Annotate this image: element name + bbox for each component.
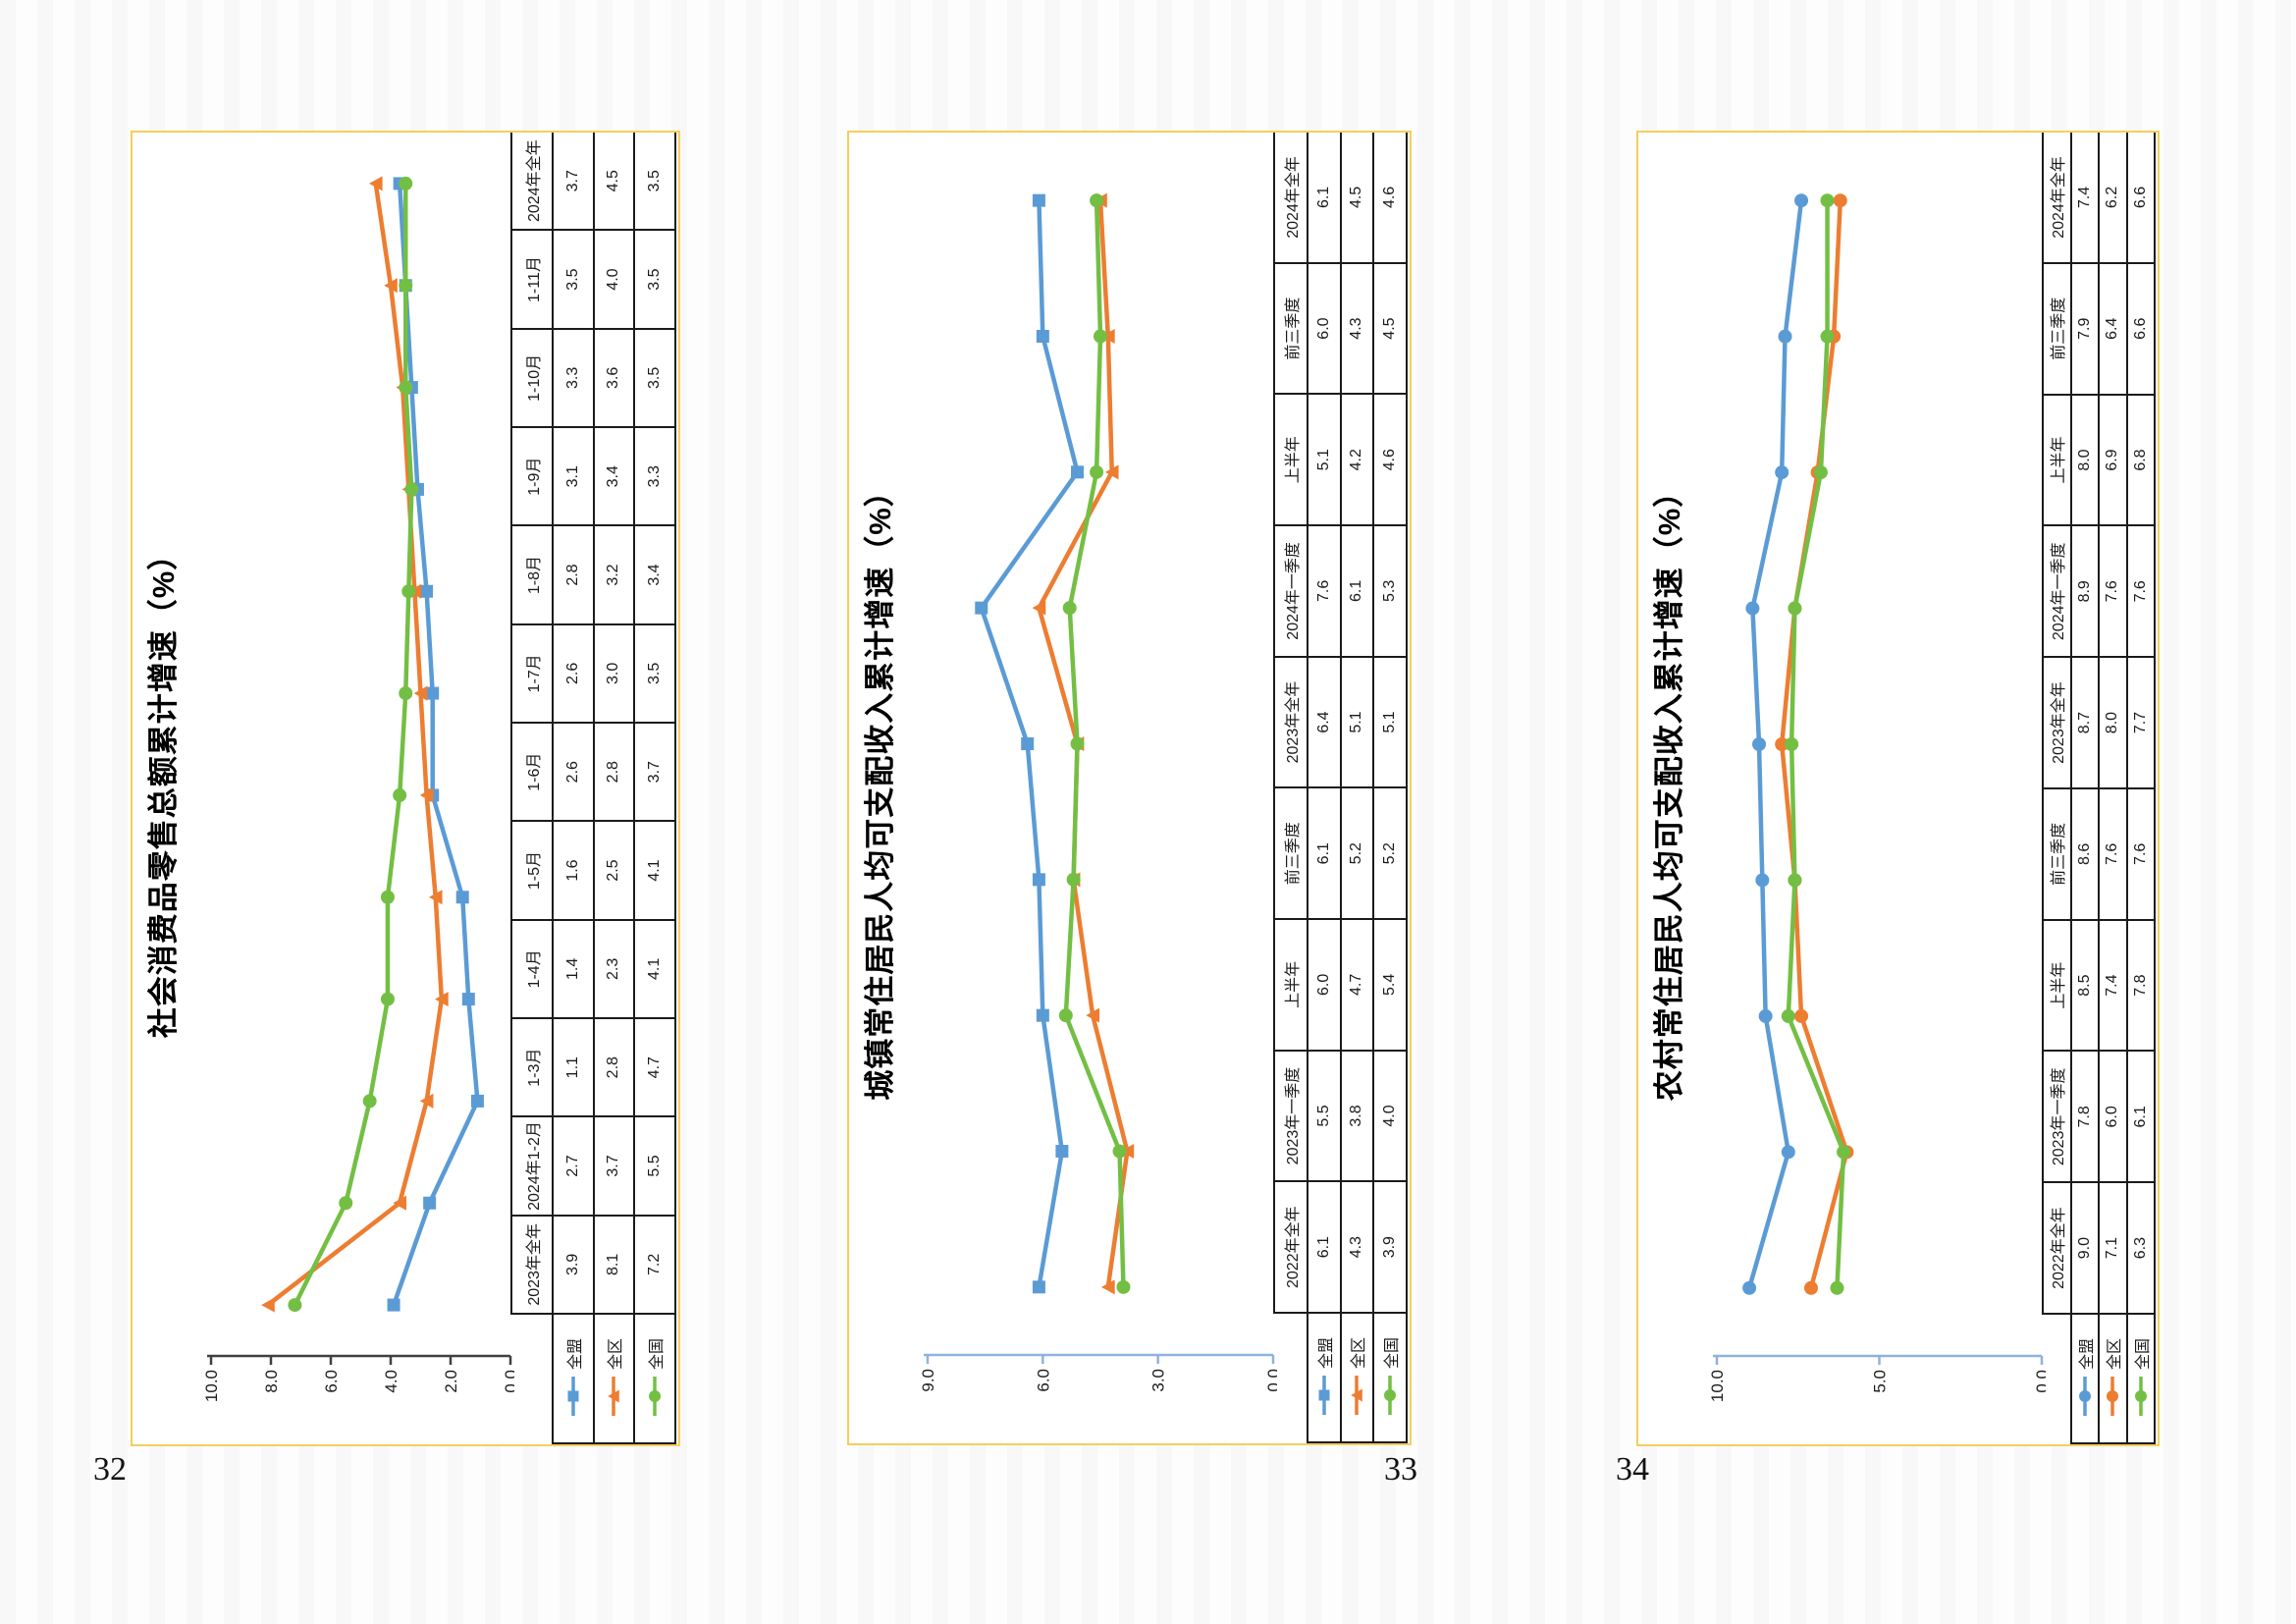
circle-marker-icon	[1779, 330, 1792, 344]
circle-marker-icon	[381, 891, 395, 904]
table-header-cell: 1-4月	[511, 920, 553, 1018]
table-header-cell: 2024年一季度	[1274, 525, 1308, 657]
table-value-cell: 3.2	[594, 525, 635, 623]
table-value-cell: 5.3	[1373, 525, 1407, 657]
table-value-cell: 3.8	[1341, 1051, 1374, 1182]
table-value-cell: 6.1	[2127, 1051, 2156, 1182]
table-corner-cell	[1274, 1313, 1308, 1442]
y-axis-tick-label: 2.0	[442, 1370, 460, 1393]
table-value-cell: 5.1	[1373, 657, 1407, 788]
table-header-cell: 前三季度	[2043, 263, 2071, 395]
table-value-cell: 2.5	[594, 821, 635, 919]
y-axis-tick-label: 10.0	[1708, 1370, 1727, 1402]
table-value-cell: 2.8	[553, 525, 594, 623]
table-value-cell: 2.6	[553, 723, 594, 821]
page-number: 32	[93, 1451, 127, 1489]
table-row: 全国3.94.05.45.25.15.34.64.54.6	[1373, 133, 1407, 1442]
table-value-cell: 8.5	[2071, 920, 2100, 1052]
table-header-cell: 前三季度	[1274, 263, 1308, 395]
table-value-cell: 4.0	[594, 230, 635, 328]
table-value-cell: 4.5	[1373, 263, 1407, 395]
table-value-cell: 3.1	[553, 427, 594, 525]
square-marker-icon	[1033, 1280, 1045, 1293]
table-value-cell: 7.6	[2099, 788, 2127, 920]
circle-marker-icon	[399, 279, 412, 293]
table-value-cell: 3.4	[634, 525, 675, 623]
table-header-cell: 2024年全年	[1274, 133, 1308, 263]
table-value-cell: 6.1	[1308, 133, 1341, 263]
circle-marker-icon	[1775, 465, 1789, 479]
table-value-cell: 6.1	[1341, 525, 1374, 657]
table-value-cell: 7.4	[2071, 133, 2100, 263]
circle-marker-icon	[1782, 1145, 1795, 1159]
circle-marker-icon	[339, 1196, 352, 1210]
circle-marker-icon	[399, 686, 412, 700]
table-value-cell: 6.6	[2127, 263, 2156, 395]
legend-label: 全盟	[2073, 1338, 2097, 1370]
circle-marker-icon	[404, 482, 418, 496]
table-value-cell: 3.5	[634, 624, 675, 723]
circle-marker-icon	[399, 381, 412, 395]
square-marker-icon	[1021, 737, 1034, 750]
table-value-cell: 3.5	[634, 230, 675, 328]
y-axis-tick-label: 9.0	[919, 1369, 937, 1392]
square-marker-icon	[426, 687, 439, 700]
chart-rotor: 城镇常住居民人均可支配收入累计增速（%）9.06.03.00.02022年全年2…	[849, 133, 1410, 1443]
table-value-cell: 8.1	[594, 1216, 635, 1314]
legend-label: 全国	[1378, 1337, 1402, 1369]
table-header-cell: 2022年全年	[2043, 1182, 2071, 1314]
square-marker-icon	[1055, 1145, 1068, 1158]
circle-marker-icon	[1384, 1389, 1396, 1401]
plot-area: 10.05.00.0	[1638, 133, 2046, 1444]
circle-marker-icon	[1094, 330, 1107, 344]
legend-label: 全国	[2129, 1338, 2153, 1370]
legend-cell: 全区	[2099, 1314, 2127, 1443]
circle-marker-icon	[1837, 1145, 1850, 1159]
circle-marker-icon	[1742, 1281, 1756, 1295]
legend-cell: 全区	[594, 1314, 635, 1443]
table-row: 全盟6.15.56.06.16.47.65.16.06.1	[1308, 133, 1341, 1442]
table-value-cell: 3.5	[553, 230, 594, 328]
y-axis-tick-label: 8.0	[262, 1370, 281, 1393]
table-value-cell: 4.3	[1341, 263, 1374, 395]
circle-marker-icon	[1063, 601, 1077, 615]
circle-marker-icon	[1794, 193, 1808, 207]
table-value-cell: 5.5	[1308, 1051, 1341, 1182]
circle-marker-icon	[1745, 602, 1759, 616]
table-value-cell: 4.3	[1341, 1181, 1374, 1313]
circle-marker-icon	[1788, 873, 1801, 887]
table-value-cell: 5.2	[1373, 787, 1407, 919]
table-value-cell: 4.2	[1341, 394, 1374, 525]
table-header-row: 2022年全年2023年一季度上半年前三季度2023年全年2024年一季度上半年…	[1274, 133, 1308, 1442]
table-value-cell: 3.7	[553, 133, 594, 230]
circle-marker-icon	[1830, 1281, 1843, 1295]
chart-rotor: 农村常住居民人均可支配收入累计增速（%）10.05.00.02022年全年202…	[1638, 133, 2158, 1444]
y-axis-tick-label: 10.0	[202, 1370, 221, 1402]
table-header-cell: 1-5月	[511, 821, 553, 919]
table-value-cell: 3.7	[594, 1116, 635, 1215]
circle-marker-icon	[1782, 1009, 1795, 1023]
triangle-marker-icon	[261, 1298, 275, 1313]
circle-marker-icon	[393, 788, 406, 802]
table-value-cell: 6.2	[2099, 133, 2127, 263]
legend-label: 全区	[2101, 1338, 2124, 1370]
table-value-cell: 8.0	[2071, 395, 2100, 526]
circle-marker-icon	[401, 584, 415, 598]
y-axis-tick-label: 5.0	[1871, 1370, 1890, 1393]
legend-key-icon	[2132, 1374, 2150, 1419]
table-value-cell: 6.3	[2127, 1182, 2156, 1314]
table-value-cell: 4.5	[1341, 133, 1374, 263]
table-value-cell: 6.6	[2127, 133, 2156, 263]
table-value-cell: 7.2	[634, 1216, 675, 1314]
legend-cell: 全国	[1373, 1313, 1407, 1442]
y-axis-tick-label: 3.0	[1149, 1369, 1168, 1392]
chart-panel-2: 城镇常住居民人均可支配收入累计增速（%）9.06.03.00.02022年全年2…	[847, 131, 1412, 1445]
circle-marker-icon	[1821, 330, 1835, 344]
square-marker-icon	[456, 891, 469, 903]
circle-marker-icon	[363, 1094, 377, 1108]
table-value-cell: 6.4	[1308, 657, 1341, 788]
square-marker-icon	[423, 1197, 436, 1210]
legend-label: 全区	[602, 1338, 625, 1370]
table-value-cell: 4.1	[634, 821, 675, 919]
circle-marker-icon	[1755, 873, 1769, 887]
table-header-cell: 2023年全年	[511, 1216, 553, 1314]
table-corner-cell	[2043, 1314, 2071, 1443]
circle-marker-icon	[1067, 873, 1081, 887]
circle-marker-icon	[1752, 737, 1766, 751]
legend-label: 全国	[643, 1338, 667, 1370]
table-header-cell: 1-3月	[511, 1018, 553, 1116]
table-corner-cell	[511, 1314, 553, 1443]
circle-marker-icon	[1788, 602, 1801, 616]
table-header-cell: 1-10月	[511, 329, 553, 427]
table-value-cell: 1.6	[553, 821, 594, 919]
table-header-cell: 2023年一季度	[2043, 1051, 2071, 1182]
table-value-cell: 5.2	[1341, 787, 1374, 919]
square-marker-icon	[567, 1391, 578, 1402]
circle-marker-icon	[288, 1298, 301, 1312]
table-header-cell: 2022年全年	[1274, 1181, 1308, 1313]
chart-canvas: 农村常住居民人均可支配收入累计增速（%）10.05.00.02022年全年202…	[1638, 133, 2158, 1444]
table-value-cell: 6.8	[2127, 395, 2156, 526]
table-value-cell: 7.8	[2071, 1051, 2100, 1182]
circle-marker-icon	[2135, 1390, 2147, 1402]
table-header-cell: 1-6月	[511, 723, 553, 821]
table-value-cell: 5.1	[1341, 657, 1374, 788]
square-marker-icon	[1037, 330, 1049, 343]
data-table: 2022年全年2023年一季度上半年前三季度2023年全年2024年一季度上半年…	[2042, 133, 2156, 1444]
circle-marker-icon	[1090, 465, 1103, 479]
table-row: 全区8.13.72.82.32.52.83.03.23.43.64.04.5	[594, 133, 635, 1443]
plot-area: 10.08.06.04.02.00.0	[133, 133, 514, 1444]
square-marker-icon	[975, 602, 988, 615]
table-header-cell: 2024年一季度	[2043, 525, 2071, 657]
table-value-cell: 3.3	[553, 329, 594, 427]
table-value-cell: 7.6	[2099, 525, 2127, 657]
table-value-cell: 4.7	[634, 1018, 675, 1116]
legend-cell: 全国	[634, 1314, 675, 1443]
table-value-cell: 9.0	[2071, 1182, 2100, 1314]
table-header-cell: 2023年一季度	[1274, 1051, 1308, 1182]
table-value-cell: 8.6	[2071, 788, 2100, 920]
square-marker-icon	[1071, 465, 1084, 478]
table-value-cell: 4.0	[1373, 1051, 1407, 1182]
square-marker-icon	[1318, 1390, 1329, 1401]
table-value-cell: 2.6	[553, 624, 594, 723]
legend-key-icon	[1348, 1373, 1365, 1418]
table-row: 全盟9.07.88.58.68.78.98.07.97.4	[2071, 133, 2100, 1443]
legend-label: 全区	[1345, 1337, 1368, 1369]
table-value-cell: 4.6	[1373, 133, 1407, 263]
table-value-cell: 6.0	[1308, 919, 1341, 1051]
table-value-cell: 7.1	[2099, 1182, 2127, 1314]
y-axis-tick-label: 4.0	[382, 1370, 400, 1393]
table-value-cell: 5.4	[1373, 919, 1407, 1051]
table-header-row: 2023年全年2024年1-2月1-3月1-4月1-5月1-6月1-7月1-8月…	[511, 133, 553, 1443]
page-number: 33	[1384, 1451, 1417, 1489]
table-header-cell: 1-8月	[511, 525, 553, 623]
table-header-cell: 上半年	[2043, 395, 2071, 526]
table-value-cell: 3.9	[553, 1216, 594, 1314]
series-line-1	[268, 184, 442, 1305]
circle-marker-icon	[1113, 1145, 1127, 1159]
table-value-cell: 6.0	[2099, 1051, 2127, 1182]
table-value-cell: 6.9	[2099, 395, 2127, 526]
table-header-cell: 上半年	[1274, 919, 1308, 1051]
table-header-cell: 1-7月	[511, 624, 553, 723]
circle-marker-icon	[1759, 1009, 1773, 1023]
table-value-cell: 7.9	[2071, 263, 2100, 395]
table-value-cell: 2.8	[594, 1018, 635, 1116]
table-row: 全盟3.92.71.11.41.62.62.62.83.13.33.53.7	[553, 133, 594, 1443]
table-value-cell: 5.1	[1308, 394, 1341, 525]
page-number: 34	[1616, 1451, 1649, 1489]
circle-marker-icon	[1834, 193, 1847, 207]
table-row: 全区4.33.84.75.25.16.14.24.34.5	[1341, 133, 1374, 1442]
table-value-cell: 4.1	[634, 920, 675, 1018]
circle-marker-icon	[1794, 1009, 1808, 1023]
table-header-cell: 2023年全年	[1274, 657, 1308, 788]
square-marker-icon	[471, 1095, 484, 1108]
table-row: 全区7.16.07.47.68.07.66.96.46.2	[2099, 133, 2127, 1443]
circle-marker-icon	[381, 993, 395, 1006]
legend-key-icon	[646, 1374, 664, 1419]
table-value-cell: 1.4	[553, 920, 594, 1018]
square-marker-icon	[388, 1299, 400, 1312]
table-value-cell: 2.3	[594, 920, 635, 1018]
circle-marker-icon	[2107, 1390, 2118, 1402]
table-value-cell: 7.4	[2099, 920, 2127, 1052]
y-axis-tick-label: 6.0	[322, 1370, 341, 1393]
circle-marker-icon	[399, 177, 412, 190]
circle-marker-icon	[1821, 193, 1835, 207]
legend-cell: 全盟	[1308, 1313, 1341, 1442]
chart-panel-3: 农村常住居民人均可支配收入累计增速（%）10.05.00.02022年全年202…	[1636, 131, 2160, 1446]
table-header-cell: 上半年	[2043, 920, 2071, 1052]
series-line-2	[294, 184, 411, 1305]
legend-key-icon	[2104, 1374, 2121, 1419]
table-row: 全国6.36.17.87.67.77.66.86.66.6	[2127, 133, 2156, 1443]
table-value-cell: 4.5	[594, 133, 635, 230]
table-value-cell: 3.9	[1373, 1181, 1407, 1313]
circle-marker-icon	[1804, 1281, 1818, 1295]
table-value-cell: 8.0	[2099, 657, 2127, 788]
table-value-cell: 7.8	[2127, 920, 2156, 1052]
square-marker-icon	[1033, 194, 1045, 207]
y-axis-tick-label: 6.0	[1034, 1369, 1052, 1392]
legend-cell: 全国	[2127, 1314, 2156, 1443]
legend-key-icon	[2076, 1374, 2094, 1419]
table-header-cell: 前三季度	[1274, 787, 1308, 919]
table-header-cell: 2023年全年	[2043, 657, 2071, 788]
circle-marker-icon	[1116, 1280, 1130, 1294]
table-value-cell: 7.6	[2127, 788, 2156, 920]
table-value-cell: 2.7	[553, 1116, 594, 1215]
table-header-cell: 2024年全年	[2043, 133, 2071, 263]
legend-cell: 全盟	[553, 1314, 594, 1443]
table-value-cell: 1.1	[553, 1018, 594, 1116]
legend-label: 全盟	[561, 1338, 585, 1370]
table-value-cell: 7.6	[1308, 525, 1341, 657]
table-value-cell: 6.1	[1308, 1181, 1341, 1313]
table-value-cell: 7.7	[2127, 657, 2156, 788]
table-value-cell: 3.4	[594, 427, 635, 525]
chart-panel-1: 社会消费品零售总额累计增速（%）10.08.06.04.02.00.02023年…	[131, 131, 680, 1446]
table-value-cell: 3.0	[594, 624, 635, 723]
chart-canvas: 社会消费品零售总额累计增速（%）10.08.06.04.02.00.02023年…	[133, 133, 678, 1444]
table-value-cell: 5.5	[634, 1116, 675, 1215]
square-marker-icon	[1033, 873, 1045, 886]
chart-canvas: 城镇常住居民人均可支配收入累计增速（%）9.06.03.00.02022年全年2…	[849, 133, 1410, 1443]
table-value-cell: 3.6	[594, 329, 635, 427]
table-header-cell: 前三季度	[2043, 788, 2071, 920]
table-value-cell: 4.7	[1341, 919, 1374, 1051]
chart-rotor: 社会消费品零售总额累计增速（%）10.08.06.04.02.00.02023年…	[133, 133, 678, 1444]
data-table: 2022年全年2023年一季度上半年前三季度2023年全年2024年一季度上半年…	[1273, 133, 1408, 1443]
legend-key-icon	[1381, 1373, 1399, 1418]
square-marker-icon	[420, 585, 433, 598]
table-value-cell: 8.7	[2071, 657, 2100, 788]
table-value-cell: 3.3	[634, 427, 675, 525]
legend-key-icon	[564, 1374, 582, 1419]
legend-cell: 全区	[1341, 1313, 1374, 1442]
data-table: 2023年全年2024年1-2月1-3月1-4月1-5月1-6月1-7月1-8月…	[510, 133, 676, 1444]
circle-marker-icon	[1071, 737, 1085, 751]
table-value-cell: 6.0	[1308, 263, 1341, 395]
table-value-cell: 7.6	[2127, 525, 2156, 657]
circle-marker-icon	[1814, 465, 1828, 479]
table-value-cell: 8.9	[2071, 525, 2100, 657]
table-value-cell: 3.5	[634, 133, 675, 230]
square-marker-icon	[462, 993, 475, 1005]
table-value-cell: 2.8	[594, 723, 635, 821]
plot-area: 9.06.03.00.0	[849, 133, 1277, 1443]
square-marker-icon	[1037, 1009, 1049, 1022]
circle-marker-icon	[649, 1390, 661, 1402]
table-header-cell: 1-11月	[511, 230, 553, 328]
circle-marker-icon	[1785, 737, 1798, 751]
table-value-cell: 3.5	[634, 329, 675, 427]
circle-marker-icon	[1090, 193, 1103, 207]
legend-key-icon	[605, 1374, 622, 1419]
legend-key-icon	[1315, 1373, 1333, 1418]
table-header-cell: 上半年	[1274, 394, 1308, 525]
table-header-cell: 2024年全年	[511, 133, 553, 230]
table-value-cell: 3.7	[634, 723, 675, 821]
table-value-cell: 6.1	[1308, 787, 1341, 919]
table-value-cell: 4.6	[1373, 394, 1407, 525]
table-value-cell: 6.4	[2099, 263, 2127, 395]
legend-label: 全盟	[1312, 1337, 1336, 1369]
table-header-cell: 1-9月	[511, 427, 553, 525]
circle-marker-icon	[1059, 1008, 1073, 1022]
legend-cell: 全盟	[2071, 1314, 2100, 1443]
table-row: 全国7.25.54.74.14.13.73.53.43.33.53.53.5	[634, 133, 675, 1443]
table-header-row: 2022年全年2023年一季度上半年前三季度2023年全年2024年一季度上半年…	[2043, 133, 2071, 1443]
table-header-cell: 2024年1-2月	[511, 1116, 553, 1215]
circle-marker-icon	[2079, 1390, 2091, 1402]
